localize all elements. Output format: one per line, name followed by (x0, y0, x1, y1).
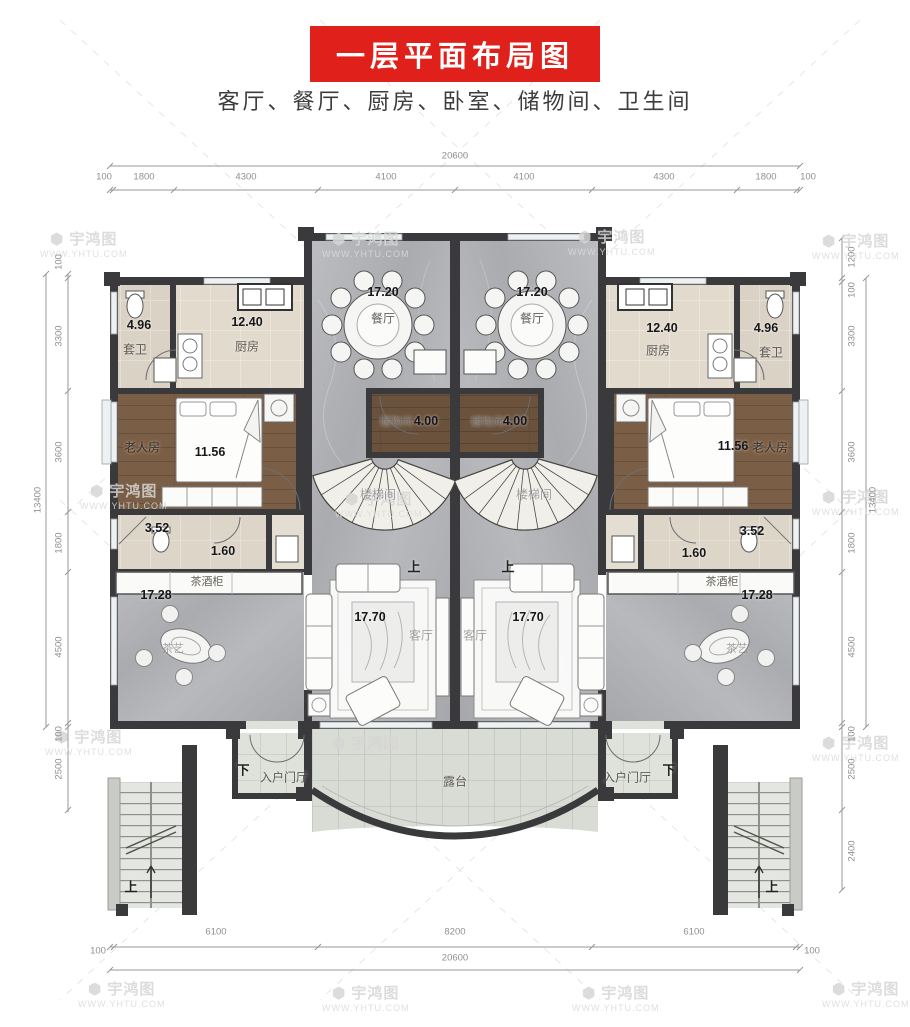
page-title: 一层平面布局图 (310, 26, 600, 82)
dim-top-0: 100 (96, 172, 112, 183)
dim-bottom-0: 100 (90, 946, 106, 957)
room-label-living-left: 客厅 (409, 627, 433, 644)
room-label-foyer-left: 入户门厅 (260, 769, 308, 786)
room-area-ensuite-right: 4.96 (754, 321, 778, 335)
floor-plan-page: 一层平面布局图 客厅、餐厅、厨房、卧室、储物间、卫生间 ⬢ 宇鸿图WWW.YHT… (0, 0, 910, 1027)
room-label-teaart-left: 茶艺 (162, 640, 184, 656)
dim-right-5: 4500 (847, 636, 858, 657)
dim-left-4: 4500 (54, 636, 65, 657)
dim-right-1: 100 (847, 282, 858, 298)
dim-top-4: 4100 (513, 172, 534, 183)
room-area-bath-right: 3.52 (740, 524, 764, 538)
dim-right-3: 3600 (847, 441, 858, 462)
room-label-elder-right: 老人房 (752, 439, 788, 456)
stair-up-label-right: 上 (501, 557, 514, 576)
dim-right-total: 13400 (868, 487, 879, 513)
dim-top-2: 4300 (235, 172, 256, 183)
dim-right-8: 2400 (847, 840, 858, 861)
dim-top-7: 100 (800, 172, 816, 183)
room-area-closet-left: 1.60 (211, 544, 235, 558)
dim-top-1: 1800 (133, 172, 154, 183)
room-label-dining-left: 餐厅 (371, 310, 395, 327)
dim-left-3: 1800 (54, 532, 65, 553)
dim-right-6: 100 (847, 726, 858, 742)
dim-bottom-2: 8200 (444, 927, 465, 938)
room-label-teacabinet-right: 茶酒柜 (706, 573, 739, 589)
dim-right-7: 2500 (847, 758, 858, 779)
room-label-teacabinet-left: 茶酒柜 (191, 573, 224, 589)
subtitle: 客厅、餐厅、厨房、卧室、储物间、卫生间 (217, 84, 692, 116)
room-area-dining-left: 17.20 (367, 285, 398, 299)
stair-up-label-left: 上 (407, 557, 420, 576)
dim-left-total: 13400 (33, 487, 44, 513)
dim-bottom-1: 6100 (205, 927, 226, 938)
dim-bottom-3: 6100 (683, 927, 704, 938)
room-label-stairwell-right: 楼梯间 (516, 486, 552, 503)
room-label-ensuite-right: 套卫 (759, 344, 783, 361)
dim-bottom-total: 20600 (442, 953, 468, 964)
dim-top-total: 20600 (442, 151, 468, 162)
dim-right-4: 1800 (847, 532, 858, 553)
room-area-bath-left: 3.52 (145, 521, 169, 535)
dim-left-6: 2500 (54, 758, 65, 779)
room-label-elder-left: 老人房 (124, 439, 160, 456)
room-area-storage-right: 4.00 (503, 414, 527, 428)
room-area-storage-left: 4.00 (414, 414, 438, 428)
room-label-stairwell-left: 楼梯间 (360, 486, 396, 503)
room-area-living-left: 17.70 (354, 610, 385, 624)
room-label-storage-right: 储物间 (471, 413, 504, 429)
dim-left-2: 3600 (54, 441, 65, 462)
room-area-elder-left: 11.56 (195, 445, 226, 459)
room-label-living-right: 客厅 (463, 627, 487, 644)
room-area-ensuite-left: 4.96 (127, 318, 151, 332)
room-area-closet-right: 1.60 (682, 546, 706, 560)
room-area-teacabinet-left: 17.28 (140, 588, 171, 602)
dim-right-0: 1200 (847, 246, 858, 267)
room-area-kitchen-left: 12.40 (231, 315, 262, 329)
dim-left-0: 100 (54, 254, 65, 270)
room-label-dining-right: 餐厅 (520, 310, 544, 327)
exterior-stair-up-left: 上 (124, 877, 137, 896)
dim-top-5: 4300 (653, 172, 674, 183)
room-area-elder-right: 11.56 (718, 439, 749, 453)
room-label-storage-left: 储物间 (380, 413, 413, 429)
dim-top-6: 1800 (755, 172, 776, 183)
room-label-kitchen-right: 厨房 (646, 342, 670, 359)
dim-left-1: 3300 (54, 325, 65, 346)
room-area-kitchen-right: 12.40 (646, 321, 677, 335)
room-label-kitchen-left: 厨房 (235, 338, 259, 355)
dim-top-3: 4100 (375, 172, 396, 183)
room-label-ensuite-left: 套卫 (123, 341, 147, 358)
stair-down-label-left: 下 (236, 760, 249, 779)
room-label-teaart-right: 茶艺 (726, 640, 748, 656)
stair-down-label-right: 下 (662, 760, 675, 779)
dim-bottom-4: 100 (804, 946, 820, 957)
dim-left-5: 100 (54, 726, 65, 742)
dim-right-2: 3300 (847, 325, 858, 346)
room-area-dining-right: 17.20 (516, 285, 547, 299)
room-label-terrace: 露台 (443, 773, 467, 790)
room-label-foyer-right: 入户门厅 (603, 769, 651, 786)
room-area-teacabinet-right: 17.28 (741, 588, 772, 602)
room-area-living-right: 17.70 (512, 610, 543, 624)
exterior-stair-up-right: 上 (765, 877, 778, 896)
